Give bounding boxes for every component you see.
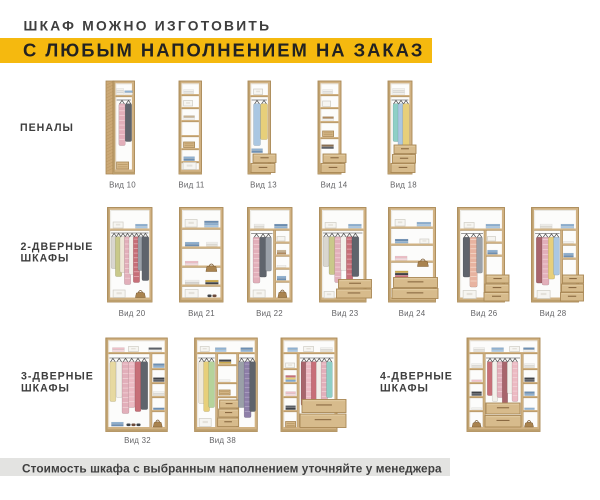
- svg-text:Вид 11: Вид 11: [178, 181, 204, 190]
- svg-text:Вид 24: Вид 24: [399, 309, 426, 318]
- svg-text:Вид 10: Вид 10: [109, 181, 136, 190]
- svg-text:ШКАФЫ: ШКАФЫ: [21, 252, 70, 264]
- svg-text:Вид 28: Вид 28: [540, 309, 567, 318]
- svg-text:ПЕНАЛЫ: ПЕНАЛЫ: [20, 122, 74, 134]
- svg-text:Вид 22: Вид 22: [256, 309, 283, 318]
- svg-text:Вид 21: Вид 21: [188, 309, 215, 318]
- svg-text:Вид 23: Вид 23: [332, 309, 359, 318]
- svg-text:3-ДВЕРНЫЕ: 3-ДВЕРНЫЕ: [21, 371, 94, 383]
- svg-text:Вид 18: Вид 18: [390, 181, 417, 190]
- svg-text:Вид 14: Вид 14: [321, 181, 348, 190]
- svg-text:ШКАФЫ: ШКАФЫ: [21, 382, 70, 394]
- svg-text:С ЛЮБЫМ НАПОЛНЕНИЕМ НА ЗАКАЗ: С ЛЮБЫМ НАПОЛНЕНИЕМ НА ЗАКАЗ: [23, 40, 424, 61]
- svg-text:Вид 20: Вид 20: [119, 309, 146, 318]
- svg-text:Стоимость шкафа с выбранным на: Стоимость шкафа с выбранным наполнением …: [22, 461, 442, 475]
- svg-text:2-ДВЕРНЫЕ: 2-ДВЕРНЫЕ: [21, 241, 94, 253]
- svg-text:4-ДВЕРНЫЕ: 4-ДВЕРНЫЕ: [380, 371, 453, 383]
- svg-text:Вид 13: Вид 13: [250, 181, 277, 190]
- svg-text:Вид 38: Вид 38: [209, 436, 236, 445]
- svg-text:Вид 32: Вид 32: [124, 436, 151, 445]
- svg-text:ШКАФЫ: ШКАФЫ: [380, 382, 429, 394]
- svg-text:Вид 26: Вид 26: [471, 309, 498, 318]
- svg-text:ШКАФ МОЖНО ИЗГОТОВИТЬ: ШКАФ МОЖНО ИЗГОТОВИТЬ: [24, 19, 272, 34]
